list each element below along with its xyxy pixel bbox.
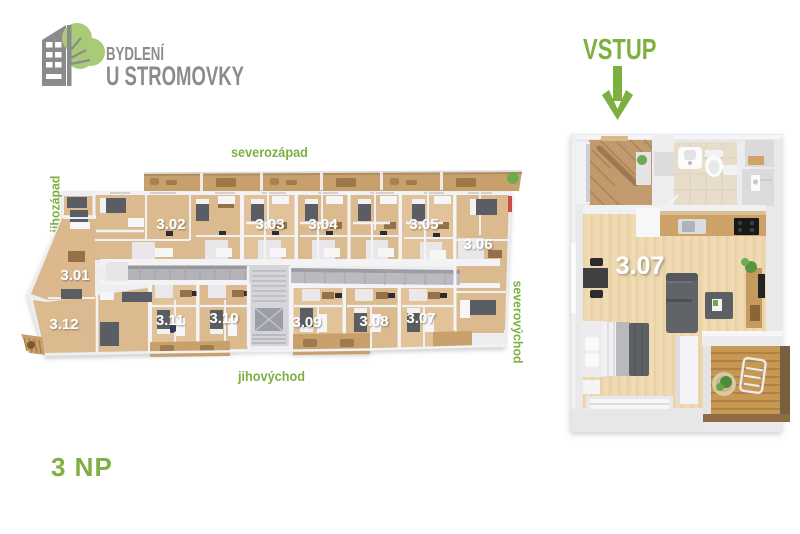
svg-text:3.07: 3.07: [616, 252, 665, 280]
